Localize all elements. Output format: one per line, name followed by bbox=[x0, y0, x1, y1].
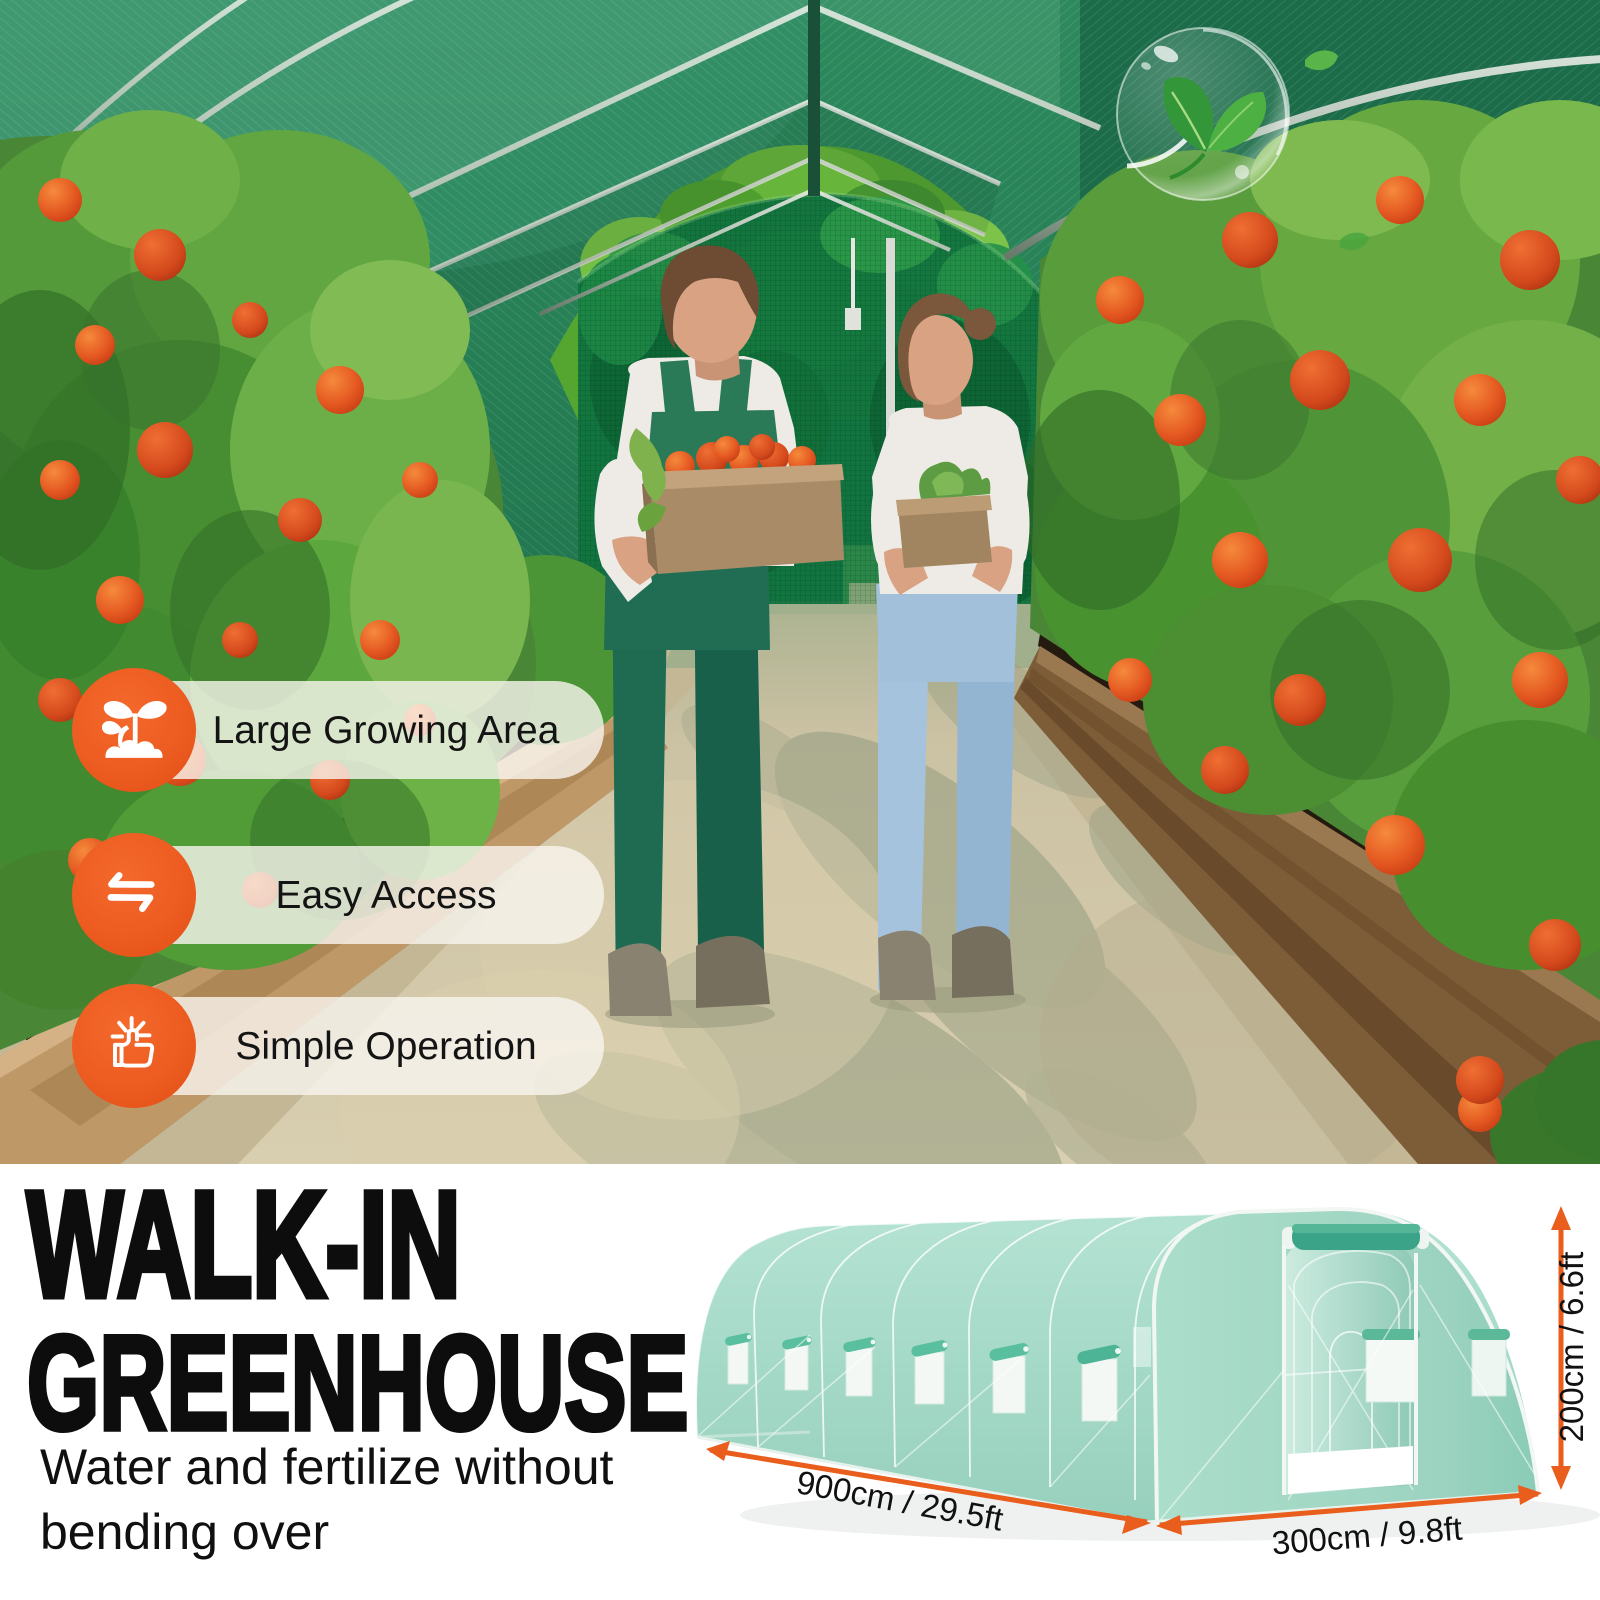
svg-text:200cm / 6.6ft: 200cm / 6.6ft bbox=[1553, 1252, 1590, 1443]
